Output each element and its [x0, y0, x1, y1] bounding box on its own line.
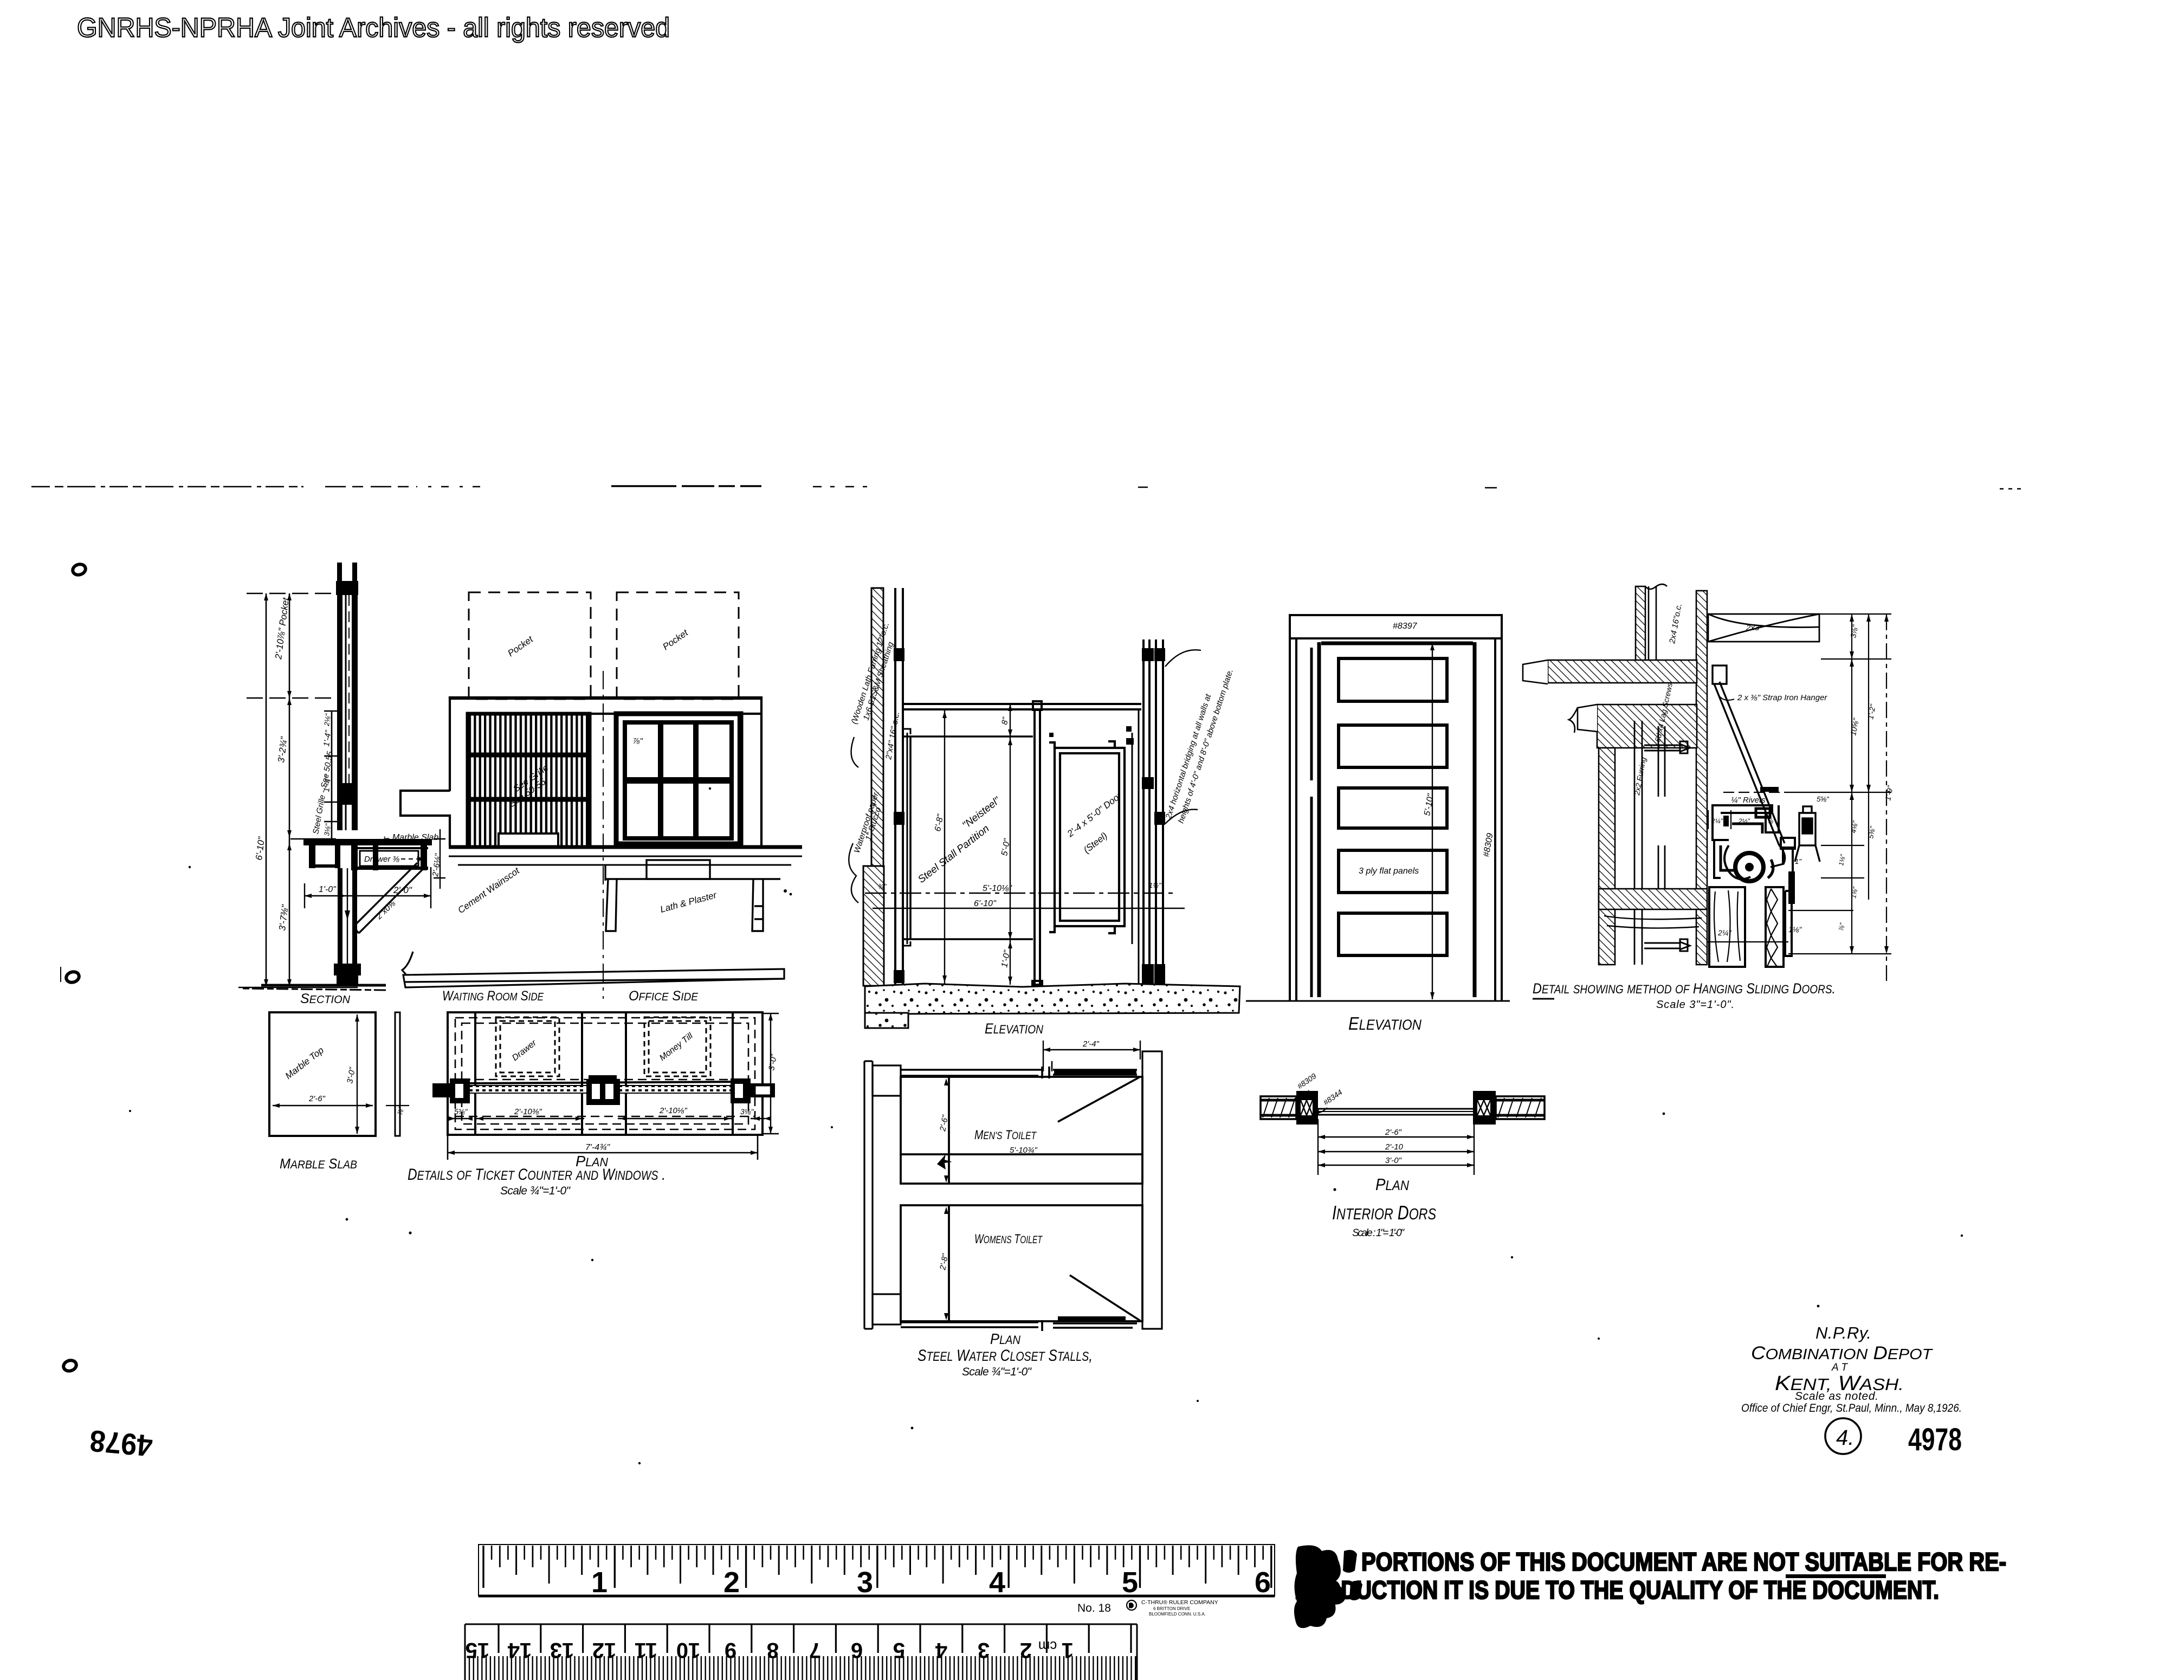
svg-text:4: 4	[989, 1566, 1005, 1599]
svg-text:7: 7	[809, 1638, 821, 1662]
svg-text:2⅛": 2⅛"	[322, 713, 332, 727]
svg-text:5'-10¾": 5'-10¾"	[1010, 1146, 1037, 1155]
svg-text:2 x ⅜" Strap Iron Hanger: 2 x ⅜" Strap Iron Hanger	[1737, 693, 1827, 702]
svg-text:2'-10: 2'-10	[1385, 1142, 1404, 1152]
svg-text:Money Till: Money Till	[658, 1031, 695, 1063]
svg-text:6 BRITTON DRIVE: 6 BRITTON DRIVE	[1153, 1606, 1190, 1611]
svg-text:5⅜": 5⅜"	[454, 1107, 468, 1116]
svg-text:1'-9": 1'-9"	[1883, 784, 1895, 801]
svg-text:Scale 3"=1'-0".: Scale 3"=1'-0".	[1656, 999, 1734, 1011]
svg-text:10⅝": 10⅝"	[1849, 717, 1860, 736]
svg-text:5⅝": 5⅝"	[1817, 795, 1830, 803]
svg-text:15: 15	[466, 1638, 490, 1662]
svg-text:3⅛": 3⅛"	[740, 1107, 754, 1116]
svg-text:¾": ¾"	[878, 882, 887, 890]
svg-text:Scale as noted.: Scale as noted.	[1795, 1390, 1878, 1403]
svg-text:2'-10⅛": 2'-10⅛"	[659, 1106, 687, 1115]
svg-text:STEEL WATER CLOSET STALLS,: STEEL WATER CLOSET STALLS,	[917, 1347, 1093, 1365]
svg-text:1⅜": 1⅜"	[1850, 886, 1859, 899]
svg-text:1⅛": 1⅛"	[1837, 854, 1847, 867]
svg-text:COMBINATION DEPOT: COMBINATION DEPOT	[1751, 1343, 1933, 1364]
svg-text:2'-0": 2'-0"	[393, 885, 412, 895]
svg-text:6'-10": 6'-10"	[974, 899, 997, 908]
svg-text:Lath & Plaster: Lath & Plaster	[659, 890, 718, 915]
svg-text:7'-4¾": 7'-4¾"	[585, 1143, 611, 1152]
svg-text:13: 13	[550, 1638, 574, 1662]
svg-text:Scale ¾"=1'-0": Scale ¾"=1'-0"	[962, 1366, 1032, 1378]
svg-text:5⅜": 5⅜"	[1866, 825, 1877, 839]
svg-text:4.: 4.	[1836, 1426, 1854, 1450]
svg-text:4: 4	[935, 1638, 947, 1662]
svg-text:2x3": 2x3"	[1746, 623, 1762, 632]
svg-text:3⅛": 3⅛"	[322, 823, 332, 837]
svg-text:(Steel): (Steel)	[1082, 830, 1109, 855]
svg-text:#8397: #8397	[1393, 622, 1418, 631]
svg-text:PLAN: PLAN	[1375, 1175, 1410, 1194]
svg-text:3: 3	[978, 1638, 990, 1662]
svg-text:⅞": ⅞"	[633, 736, 643, 746]
svg-text:Scale ¾"=1'-0": Scale ¾"=1'-0"	[500, 1185, 571, 1197]
svg-text:3'-0": 3'-0"	[1385, 1156, 1402, 1165]
svg-text:No. 18: No. 18	[1077, 1602, 1111, 1614]
svg-text:heights of 4'-0" and 8'-0" abo: heights of 4'-0" and 8'-0" above bottom …	[1177, 668, 1235, 824]
svg-text:2'-10⅜": 2'-10⅜"	[514, 1107, 542, 1116]
svg-text:C-THRU® RULER COMPANY: C-THRU® RULER COMPANY	[1141, 1599, 1218, 1606]
svg-text:2¼": 2¼"	[1711, 817, 1723, 825]
svg-text:3 ply flat panels: 3 ply flat panels	[1359, 867, 1419, 876]
svg-text:⌙ Marble Slab: ⌙ Marble Slab	[383, 833, 438, 842]
svg-text:2'-6⅛": 2'-6⅛"	[431, 853, 443, 878]
svg-text:PRODUCTION IT IS DUE TO THE QU: PRODUCTION IT IS DUE TO THE QUALITY OF T…	[1295, 1575, 1939, 1604]
svg-text:⅞": ⅞"	[396, 1105, 405, 1115]
svg-text:14: 14	[507, 1638, 532, 1662]
svg-text:2'-4": 2'-4"	[1082, 1039, 1100, 1049]
svg-text:2'-6": 2'-6"	[1385, 1128, 1402, 1137]
svg-text:6'-10": 6'-10"	[254, 836, 267, 861]
svg-text:1'-2": 1'-2"	[1866, 703, 1877, 720]
svg-text:2"x4" 16" o.c.: 2"x4" 16" o.c.	[884, 711, 901, 761]
svg-text:2: 2	[723, 1566, 740, 1599]
svg-text:6: 6	[851, 1638, 863, 1662]
svg-text:N.P.Ry.: N.P.Ry.	[1815, 1323, 1871, 1342]
svg-text:MEN'S TOILET: MEN'S TOILET	[974, 1128, 1037, 1142]
svg-text:WAITING ROOM SIDE: WAITING ROOM SIDE	[442, 988, 544, 1004]
svg-text:cm: cm	[1038, 1638, 1057, 1655]
svg-text:SECTION: SECTION	[300, 991, 351, 1006]
svg-text:6'-8": 6'-8"	[933, 813, 946, 832]
svg-text:WOMENS TOILET: WOMENS TOILET	[974, 1232, 1043, 1246]
svg-text:3'-0": 3'-0"	[345, 1067, 357, 1084]
svg-text:2'-10⅞" Pocket: 2'-10⅞" Pocket	[273, 597, 291, 661]
svg-text:Steel Stall Partition: Steel Stall Partition	[916, 823, 991, 886]
svg-text:DETAILS OF TICKET COUNTER AND: DETAILS OF TICKET COUNTER AND WINDOWS .	[408, 1166, 665, 1184]
svg-text:BLOOMFIELD CONN. U.S.A.: BLOOMFIELD CONN. U.S.A.	[1149, 1612, 1206, 1617]
svg-text:9: 9	[725, 1638, 736, 1662]
svg-text:1'-0": 1'-0"	[319, 885, 337, 894]
svg-text:DETAIL SHOWING METHOD OF HANGI: DETAIL SHOWING METHOD OF HANGING SLIDING…	[1533, 980, 1836, 997]
svg-text:1: 1	[1062, 1638, 1074, 1662]
svg-text:3'-2¾": 3'-2¾"	[276, 736, 289, 764]
svg-text:Pocket: Pocket	[506, 634, 535, 658]
svg-text:Drawer ⅜: Drawer ⅜	[364, 855, 400, 864]
svg-text:AT: AT	[1831, 1362, 1848, 1373]
svg-text:8": 8"	[1000, 716, 1010, 726]
svg-text:Pocket: Pocket	[661, 627, 690, 652]
svg-text:3: 3	[857, 1566, 873, 1599]
svg-text:MARBLE SLAB: MARBLE SLAB	[280, 1155, 357, 1172]
svg-text:4⅛": 4⅛"	[1849, 819, 1859, 833]
svg-text:#8309: #8309	[1296, 1071, 1318, 1091]
svg-text:Scale : 1"= 1'-0": Scale : 1"= 1'-0"	[1352, 1227, 1405, 1239]
svg-text:Cement Wainscot: Cement Wainscot	[456, 865, 522, 915]
svg-text:1⅛": 1⅛"	[1788, 925, 1802, 934]
svg-text:⅞": ⅞"	[1837, 922, 1846, 931]
svg-text:12: 12	[592, 1638, 617, 1662]
svg-text:Marble Top: Marble Top	[283, 1045, 326, 1081]
svg-text:Drawer: Drawer	[511, 1038, 539, 1063]
svg-text:GNRHS-NPRHA Joint Archives - a: GNRHS-NPRHA Joint Archives - all rights …	[77, 12, 670, 43]
svg-text:6: 6	[1255, 1566, 1271, 1599]
svg-text:3'-0": 3'-0"	[767, 1054, 779, 1071]
svg-text:2¼": 2¼"	[1717, 928, 1731, 937]
svg-text:5: 5	[1122, 1566, 1138, 1599]
svg-text:PLAN: PLAN	[990, 1330, 1020, 1347]
svg-text:ELEVATION: ELEVATION	[985, 1020, 1043, 1037]
svg-text:5: 5	[893, 1638, 905, 1662]
svg-text:2x4 16"o.c.: 2x4 16"o.c.	[1668, 603, 1684, 644]
svg-text:1": 1"	[1795, 857, 1802, 865]
svg-text:5'-10⅛": 5'-10⅛"	[983, 884, 1012, 893]
svg-text:3'-7⅜": 3'-7⅜"	[277, 904, 290, 932]
svg-text:INTERIOR DORS: INTERIOR DORS	[1332, 1201, 1437, 1224]
svg-text:#8309: #8309	[1482, 832, 1495, 858]
svg-text:Office of Chief Engr, St.Paul,: Office of Chief Engr, St.Paul, Minn., Ma…	[1741, 1402, 1962, 1414]
svg-text:8: 8	[767, 1638, 779, 1662]
svg-text:11: 11	[635, 1638, 657, 1662]
svg-text:3⅞": 3⅞"	[1849, 624, 1859, 639]
svg-text:5'-10": 5'-10"	[1423, 792, 1436, 816]
svg-text:2'-4 x 5'-0" Door: 2'-4 x 5'-0" Door	[1065, 790, 1124, 839]
svg-text:10: 10	[676, 1638, 701, 1662]
svg-text:4978: 4978	[1908, 1422, 1962, 1457]
svg-text:4978: 4978	[88, 1424, 154, 1463]
svg-text:¼" Rivets: ¼" Rivets	[1731, 796, 1766, 805]
svg-text:#8344: #8344	[1322, 1088, 1344, 1107]
svg-text:ELEVATION: ELEVATION	[1348, 1013, 1421, 1033]
svg-text:2'-6": 2'-6"	[308, 1094, 326, 1103]
svg-text:OFFICE SIDE: OFFICE SIDE	[629, 988, 699, 1004]
svg-text:1: 1	[591, 1566, 608, 1599]
svg-text:PORTIONS OF THIS DOCUMENT ARE: PORTIONS OF THIS DOCUMENT ARE NOT SUITAB…	[1361, 1547, 2006, 1576]
svg-text:2: 2	[1020, 1638, 1032, 1662]
